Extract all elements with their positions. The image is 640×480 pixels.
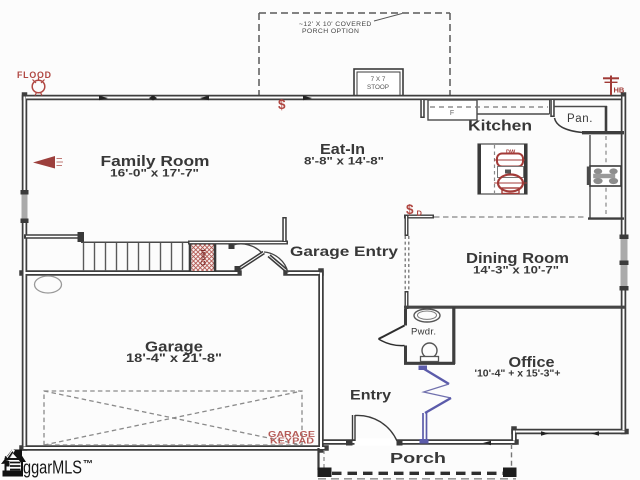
svg-text:ggarMLS: ggarMLS — [23, 457, 82, 478]
svg-text:14'-3" x 10'-7": 14'-3" x 10'-7" — [473, 265, 559, 277]
svg-text:7 X 7: 7 X 7 — [371, 76, 386, 83]
svg-text:$: $ — [278, 97, 286, 112]
svg-text:KEYPAD: KEYPAD — [270, 436, 314, 446]
svg-text:Entry: Entry — [350, 388, 392, 403]
svg-text:Garage Entry: Garage Entry — [290, 244, 399, 259]
svg-text:$: $ — [406, 202, 414, 217]
svg-text:F: F — [450, 110, 454, 117]
svg-text:HB: HB — [614, 86, 625, 95]
svg-text:™: ™ — [83, 459, 93, 470]
svg-text:18'-4" x 21'-8": 18'-4" x 21'-8" — [126, 353, 222, 365]
svg-text:Coat: Coat — [199, 249, 208, 266]
svg-text:8'-8" x 14'-8": 8'-8" x 14'-8" — [304, 156, 384, 168]
svg-text:Pwdr.: Pwdr. — [411, 327, 436, 338]
svg-text:Kitchen: Kitchen — [468, 119, 532, 135]
svg-text:D: D — [417, 209, 423, 218]
svg-text:PORCH OPTION: PORCH OPTION — [302, 28, 359, 35]
svg-text:FLOOD: FLOOD — [17, 70, 52, 80]
svg-text:16'-0" x 17'-7": 16'-0" x 17'-7" — [110, 168, 199, 180]
svg-text:Porch: Porch — [390, 451, 446, 467]
svg-text:~12' X 10' COVERED: ~12' X 10' COVERED — [299, 21, 372, 28]
svg-text:Pan.: Pan. — [567, 113, 593, 125]
svg-text:'10'-4" + x 15'-3"+: '10'-4" + x 15'-3"+ — [475, 368, 561, 380]
svg-text:STOOP: STOOP — [367, 84, 389, 91]
